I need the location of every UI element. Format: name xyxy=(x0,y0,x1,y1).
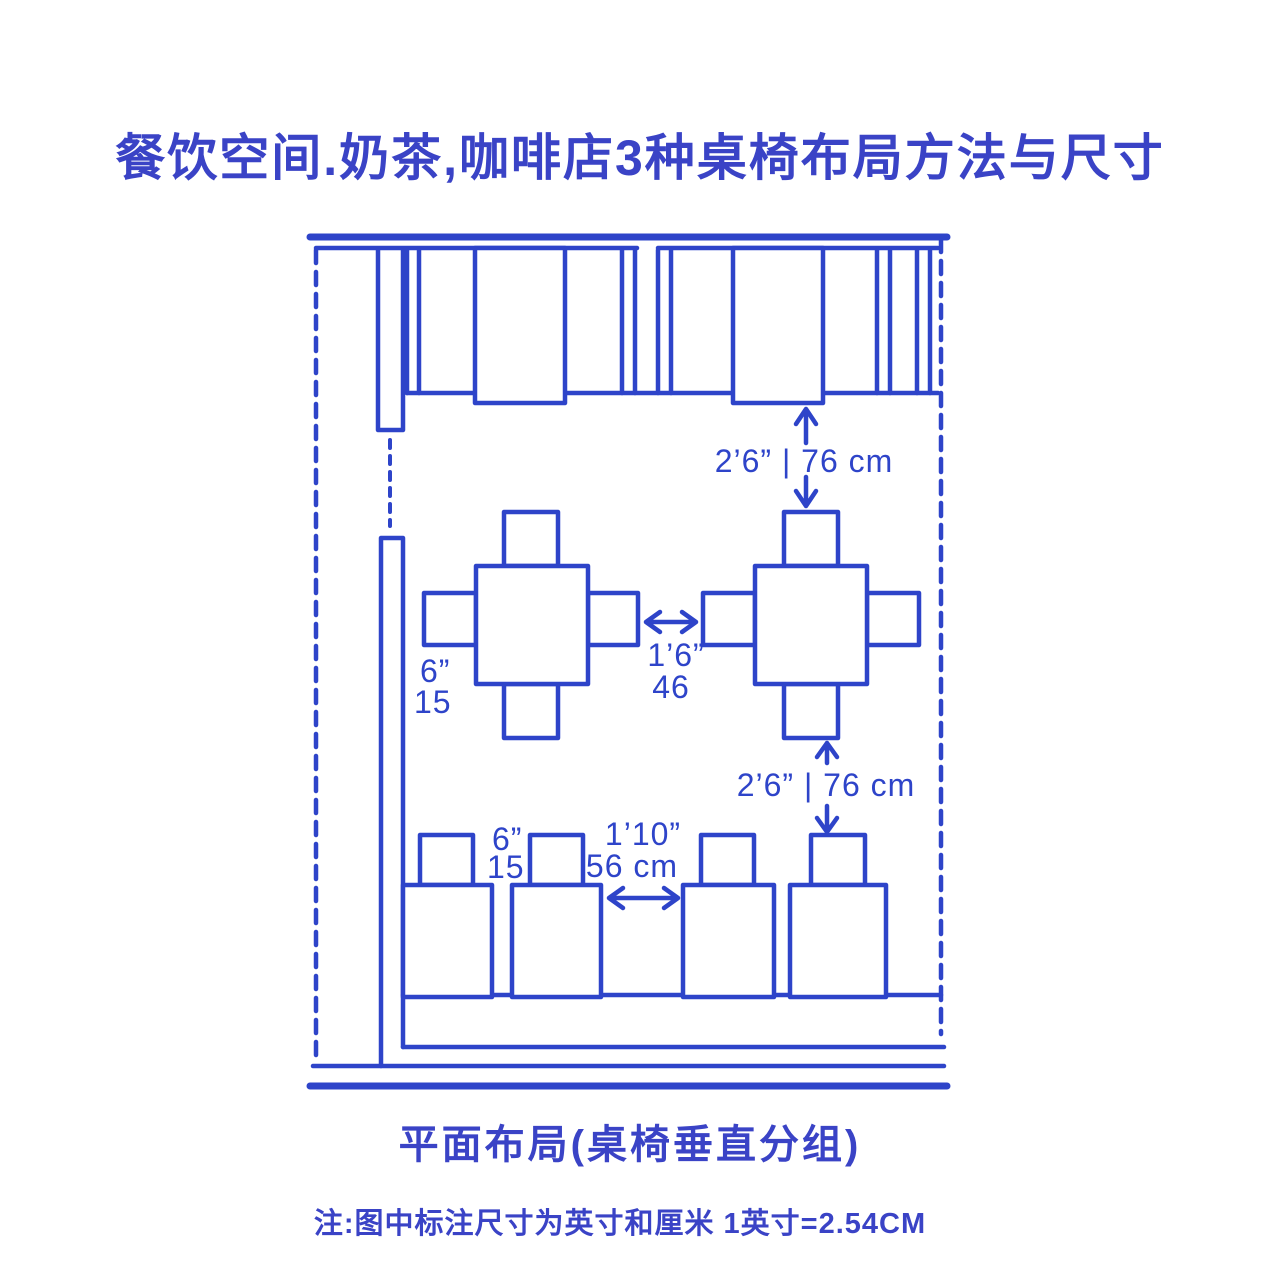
chair-west xyxy=(703,593,755,645)
label-mid-table-spacing-in: 1’6” xyxy=(647,637,704,673)
chair-east xyxy=(588,593,638,645)
middle-table-group-2 xyxy=(703,512,919,738)
arrow-down-booth-gap xyxy=(796,477,816,506)
arrow-horizontal-row-spacing xyxy=(609,888,678,908)
chair-south xyxy=(504,684,558,738)
chair xyxy=(701,835,754,885)
label-mid-table-spacing-cm: 46 xyxy=(652,669,690,705)
chair-north xyxy=(504,512,558,566)
label-mid-chair-offset-cm: 15 xyxy=(414,684,452,720)
table xyxy=(403,885,492,997)
chair xyxy=(420,835,473,885)
arrow-up-booth-gap xyxy=(796,409,816,443)
label-row-table-spacing-cm: 56 cm xyxy=(586,848,678,884)
chair-north xyxy=(784,512,838,566)
arrow-down-row-gap xyxy=(817,806,837,832)
chair xyxy=(530,835,583,885)
floor-plan-diagram: 2’6” | 76 cm 6” 15 1’6” 46 2’6” | 76 cm … xyxy=(0,0,1280,1280)
table xyxy=(512,885,601,997)
chair-east xyxy=(867,593,919,645)
arrow-up-row-gap xyxy=(817,743,837,763)
label-row-chair-offset-cm: 15 xyxy=(487,849,525,885)
inner-wall-left xyxy=(381,538,403,1066)
plan-caption: 平面布局(桌椅垂直分组) xyxy=(0,1112,1260,1170)
square-table xyxy=(476,566,588,684)
wall-pier-top-left xyxy=(378,250,403,430)
booth-table-2 xyxy=(733,248,823,403)
chair xyxy=(811,835,865,885)
booth-seating-row xyxy=(316,248,938,403)
table xyxy=(790,885,886,997)
arrow-horizontal-mid-spacing xyxy=(646,612,696,632)
label-booth-to-table-gap: 2’6” | 76 cm xyxy=(715,443,894,479)
unit-note: 注:图中标注尺寸为英寸和厘米 1英寸=2.54CM xyxy=(0,1200,1240,1242)
booth-table-1 xyxy=(475,248,565,403)
label-row-table-spacing-in: 1’10” xyxy=(605,816,681,852)
label-table-to-row-gap: 2’6” | 76 cm xyxy=(737,767,916,803)
middle-table-group-1 xyxy=(424,512,638,738)
square-table xyxy=(755,566,867,684)
chair-south xyxy=(784,684,838,738)
chair-west xyxy=(424,593,476,645)
table xyxy=(683,885,774,997)
